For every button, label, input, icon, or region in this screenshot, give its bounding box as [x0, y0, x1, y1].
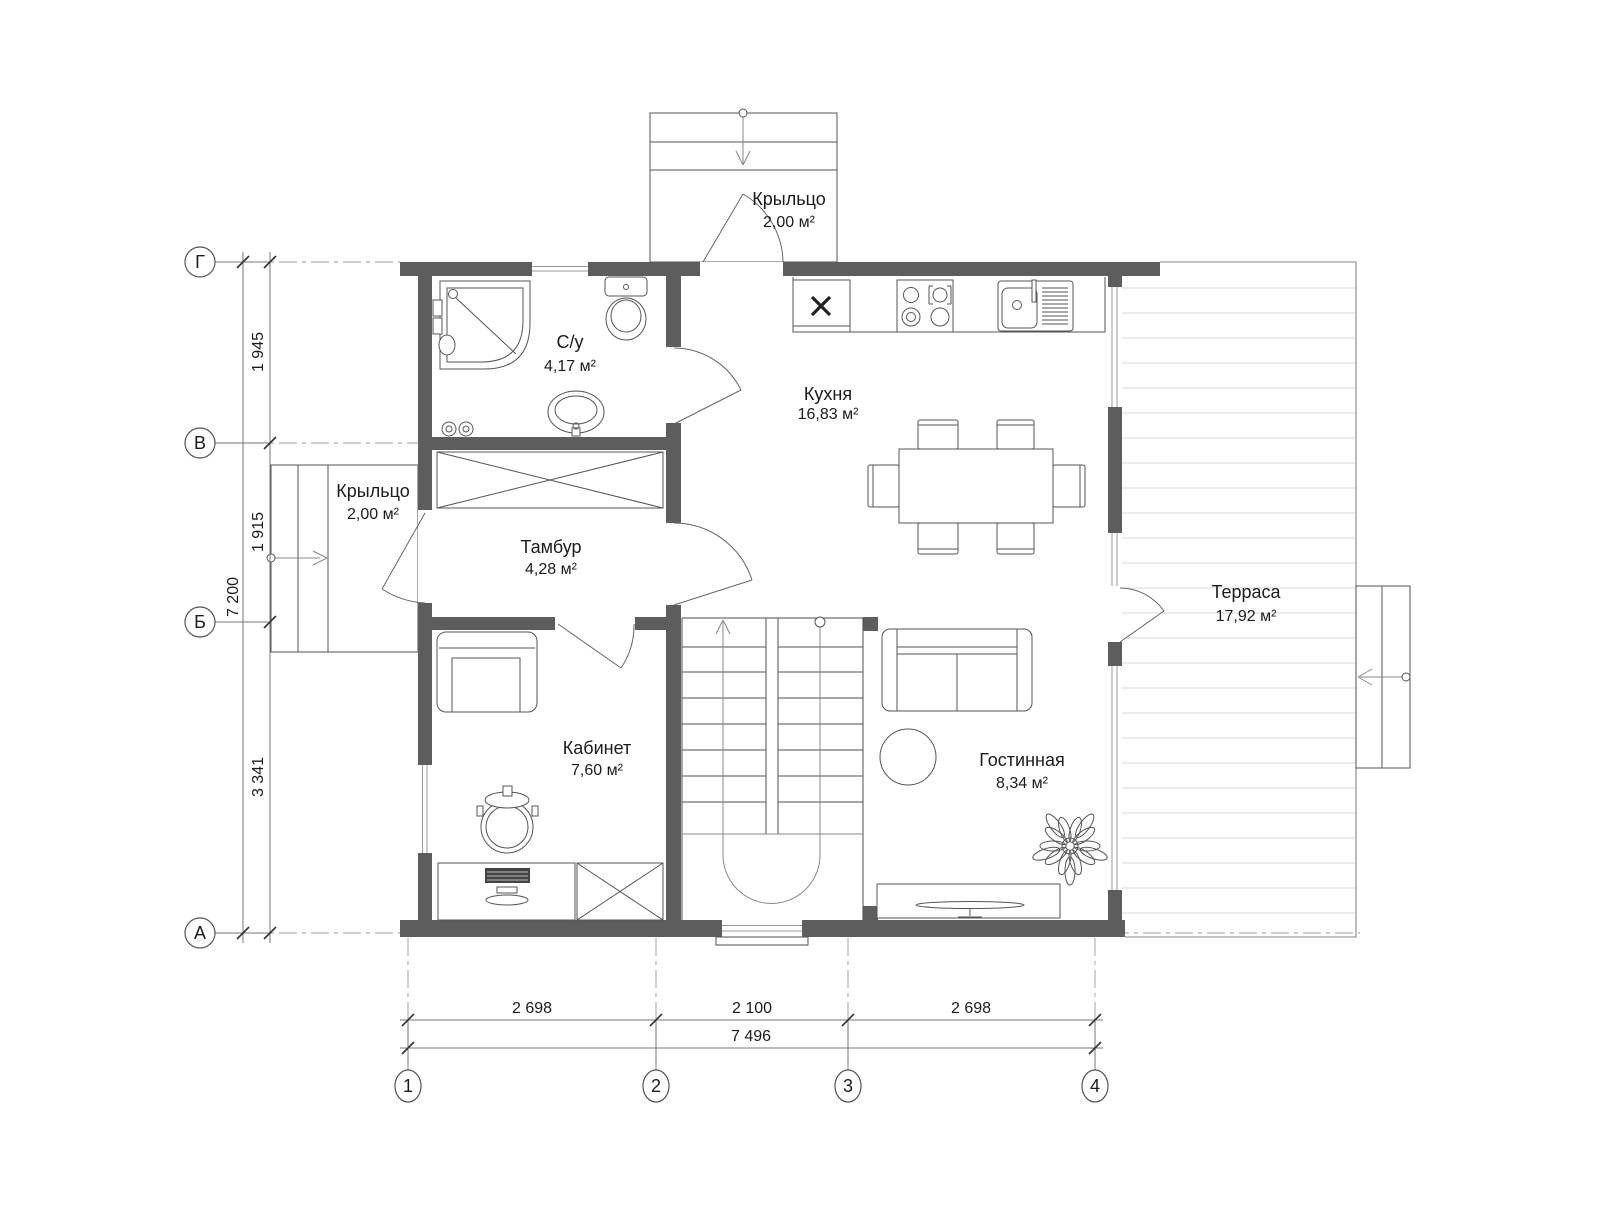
wall-office [635, 617, 681, 630]
dim-left-total: 7 200 [225, 577, 242, 617]
tv-stand [877, 884, 1060, 918]
window-office [418, 765, 432, 853]
living-room-furniture [877, 629, 1109, 918]
floor-plan-drawing: 1 945 1 915 3 341 7 200 2 698 2 100 2 69… [0, 0, 1600, 1213]
wall-right-post [1108, 642, 1122, 666]
dim-bottom-2: 2 100 [732, 1000, 772, 1017]
label-porch-top-name: Крыльцо [752, 189, 825, 209]
terrace-steps [1356, 586, 1410, 768]
label-terrace-name: Терраса [1211, 582, 1281, 602]
fridge [793, 280, 850, 332]
door-vestibule [674, 523, 752, 605]
wall-right-post [1108, 276, 1122, 287]
window-terrace-small [1108, 533, 1122, 586]
washbasin [548, 391, 604, 436]
wall-office [432, 617, 555, 630]
door-office [558, 624, 634, 668]
axis-col-2: 2 [651, 1076, 661, 1096]
dining-table [899, 449, 1053, 523]
axis-row-a: А [194, 923, 206, 943]
label-vestibule-name: Тамбур [520, 537, 581, 557]
wall-interior [666, 605, 681, 920]
axis-row-b: Б [194, 612, 206, 632]
label-living-area: 8,34 м² [996, 775, 1049, 792]
label-terrace-area: 17,92 м² [1216, 608, 1277, 625]
steps-walkline-start [1402, 673, 1410, 681]
label-living-name: Гостинная [979, 750, 1065, 770]
window-kitchen-terrace [1108, 287, 1122, 407]
dim-left-2: 1 915 [250, 512, 267, 552]
label-kitchen-area: 16,83 м² [798, 406, 859, 423]
floor-pot [477, 786, 538, 853]
door-opening-left [418, 510, 432, 603]
staircase [682, 617, 863, 920]
dim-bottom-3: 2 698 [951, 1000, 991, 1017]
dim-bottom-1: 2 698 [512, 1000, 552, 1017]
window-living-terrace [1108, 666, 1122, 890]
label-bathroom-area: 4,17 м² [544, 358, 597, 375]
plant [1031, 812, 1108, 885]
label-bathroom-name: С/у [557, 332, 584, 352]
label-office-area: 7,60 м² [571, 762, 624, 779]
axis-col-1: 1 [403, 1076, 413, 1096]
wall-right-post [1108, 890, 1122, 920]
door-opening-top [700, 262, 783, 276]
round-table [880, 729, 936, 785]
wardrobe-office [577, 863, 663, 920]
axis-grid-lines [215, 262, 1360, 1070]
dim-left-1: 1 945 [250, 332, 267, 372]
label-vestibule-area: 4,28 м² [525, 561, 578, 578]
armchair [437, 632, 537, 712]
porch-top-structure [650, 109, 837, 262]
toilet [605, 277, 647, 340]
axis-col-3: 3 [843, 1076, 853, 1096]
label-kitchen-name: Кухня [804, 384, 852, 404]
stair-walkline-turn [723, 855, 820, 903]
sofa [882, 629, 1032, 711]
dim-bottom-total: 7 496 [731, 1028, 771, 1045]
shower-cabin [433, 281, 530, 369]
wall-right-post [1108, 407, 1122, 533]
office-furniture [437, 632, 575, 920]
washer-valves [442, 422, 473, 436]
door-opening-terrace [1108, 586, 1122, 642]
dim-left-3: 3 341 [250, 757, 267, 797]
column [863, 617, 878, 631]
wall-interior [666, 276, 681, 347]
door-terrace [1120, 588, 1164, 642]
floor-plan-svg: 1 945 1 915 3 341 7 200 2 698 2 100 2 69… [0, 0, 1600, 1213]
label-porch-left-name: Крыльцо [336, 481, 409, 501]
label-porch-top-area: 2,00 м² [763, 214, 816, 231]
dining-table-set [868, 420, 1085, 554]
column [863, 906, 878, 920]
label-porch-left-area: 2,00 м² [347, 506, 400, 523]
axis-col-4: 4 [1090, 1076, 1100, 1096]
bathroom-fixtures [433, 277, 647, 436]
door-bathroom [674, 348, 741, 424]
axis-row-v: В [194, 433, 206, 453]
desk [438, 863, 575, 920]
kitchen-sink [998, 280, 1073, 331]
label-office-name: Кабинет [563, 738, 631, 758]
window-stairs [716, 920, 808, 945]
axis-row-g: Г [195, 252, 205, 272]
stove [897, 280, 953, 332]
wall-bathroom [432, 437, 681, 450]
stair-walkline-start [815, 617, 825, 627]
wardrobe-vestibule [437, 452, 663, 508]
window-bathroom [532, 262, 588, 276]
stair-walkline-up [716, 620, 730, 855]
